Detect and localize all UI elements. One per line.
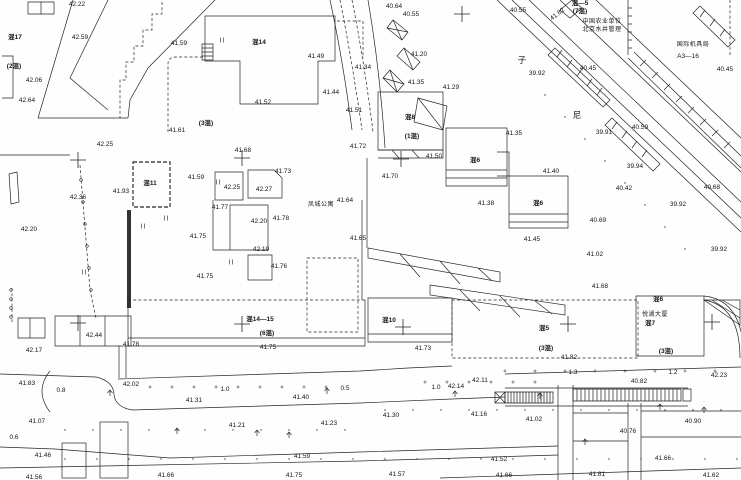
map-geometry xyxy=(0,0,741,480)
survey-cross-marks xyxy=(70,6,720,335)
hatched-wall-strips xyxy=(505,389,681,403)
survey-map: 42.2242.59混17(2混)42.0642.6441.59(3混)41.6… xyxy=(0,0,741,480)
fence-circle-marks xyxy=(10,179,93,319)
dot-marks xyxy=(64,94,737,459)
map-linework xyxy=(0,0,741,480)
parallel-tick-marks xyxy=(83,38,233,275)
plus-tick-marks xyxy=(148,369,716,388)
